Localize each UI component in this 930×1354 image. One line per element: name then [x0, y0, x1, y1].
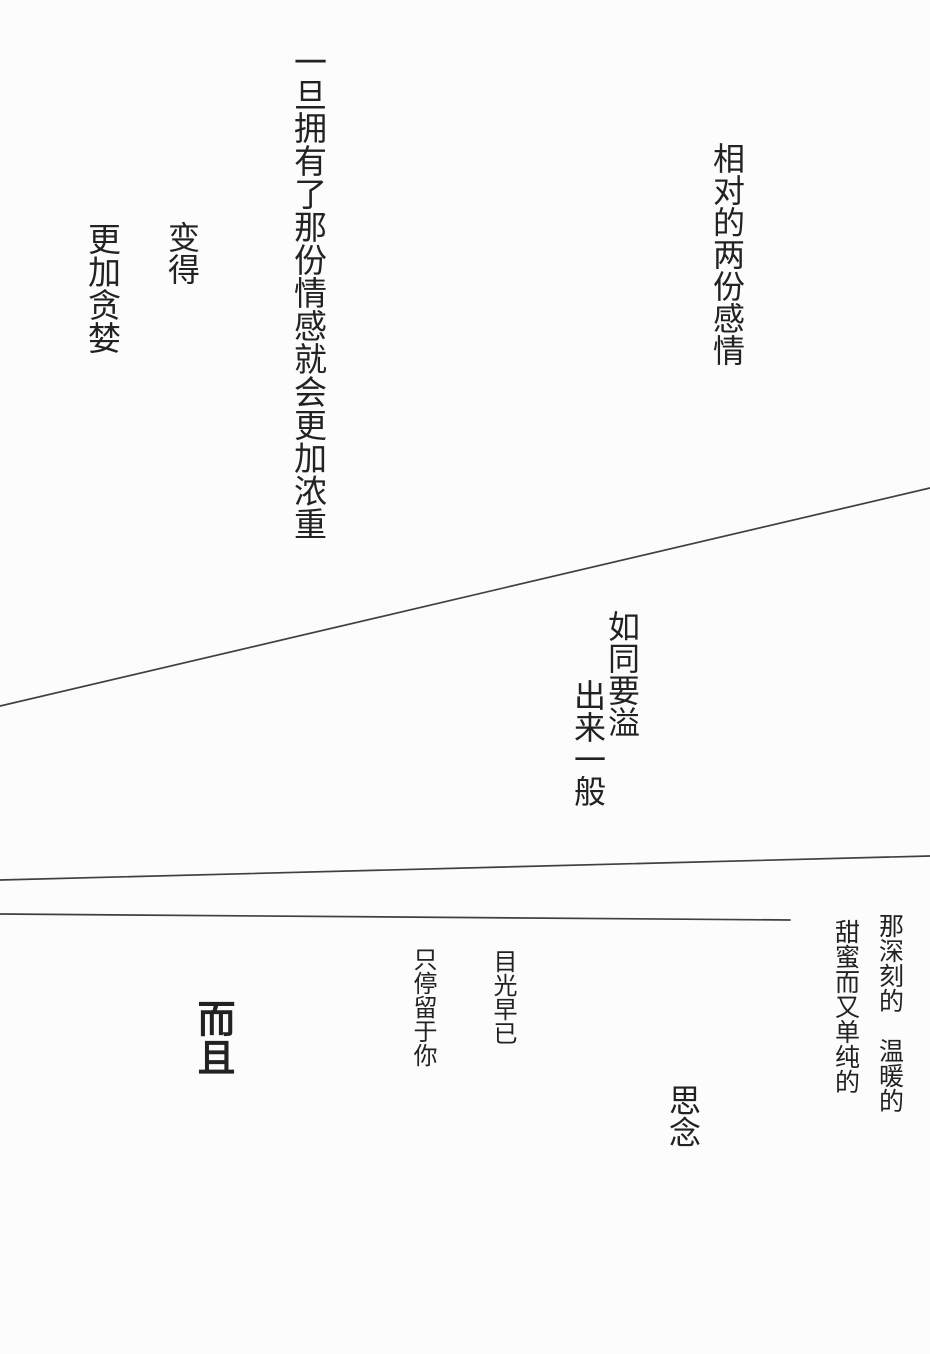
vertical-text-deep-warm: 那深刻的 温暖的 [877, 913, 902, 1113]
vertical-text-once-possessed: 一旦拥有了那份情感就会更加浓重 [292, 45, 325, 540]
vertical-text-moreover: 而且 [193, 999, 231, 1077]
vertical-text-linger-on-you: 只停留于你 [410, 947, 434, 1067]
manga-page: 一旦拥有了那份情感就会更加浓重 变得 更加贪婪 相对的两份感情 如同要溢 出来一… [0, 0, 930, 1354]
vertical-text-relative-feelings: 相对的两份感情 [711, 142, 743, 366]
panel-border-lines [0, 0, 930, 1354]
vertical-text-overflow-col2: 出来一般 [572, 679, 604, 807]
vertical-text-gaze-already: 目光早已 [490, 949, 514, 1045]
vertical-text-longing: 思念 [667, 1084, 699, 1148]
vertical-text-overflow-col1: 如同要溢 [606, 610, 638, 738]
vertical-text-become: 变得 [166, 221, 198, 285]
vertical-text-more-greedy: 更加贪婪 [86, 222, 119, 354]
vertical-text-sweet-pure: 甜蜜而又单纯的 [833, 919, 858, 1094]
